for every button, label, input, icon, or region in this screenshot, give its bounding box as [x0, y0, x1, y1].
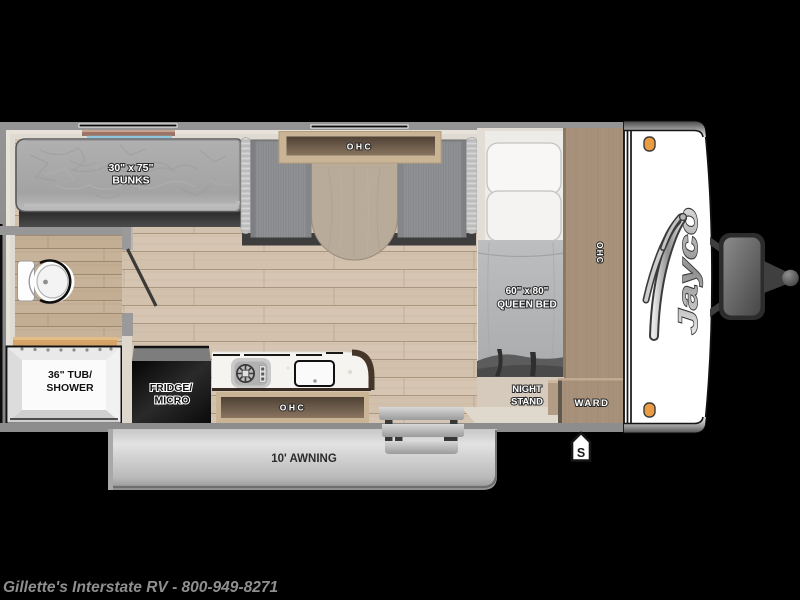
- svg-text:SHOWER: SHOWER: [46, 382, 94, 394]
- svg-text:QUEEN BED: QUEEN BED: [497, 300, 556, 311]
- svg-text:10' AWNING: 10' AWNING: [271, 453, 337, 465]
- svg-text:STAND: STAND: [511, 397, 543, 408]
- svg-text:36" TUB/: 36" TUB/: [48, 369, 92, 381]
- svg-text:30" x 75": 30" x 75": [109, 162, 154, 174]
- svg-text:MICRO: MICRO: [155, 395, 190, 407]
- svg-text:S: S: [577, 446, 585, 460]
- svg-text:WARD: WARD: [574, 398, 609, 409]
- svg-text:BUNKS: BUNKS: [112, 175, 149, 187]
- svg-text:OHC: OHC: [347, 142, 373, 152]
- svg-text:Gillette's Interstate RV - 800: Gillette's Interstate RV - 800-949-8271: [3, 579, 278, 596]
- svg-text:NIGHT: NIGHT: [512, 384, 542, 395]
- svg-text:FRIDGE/: FRIDGE/: [150, 382, 193, 394]
- svg-text:60" x 80": 60" x 80": [506, 286, 549, 297]
- svg-text:OHC: OHC: [280, 403, 306, 413]
- svg-text:OHC: OHC: [595, 242, 605, 264]
